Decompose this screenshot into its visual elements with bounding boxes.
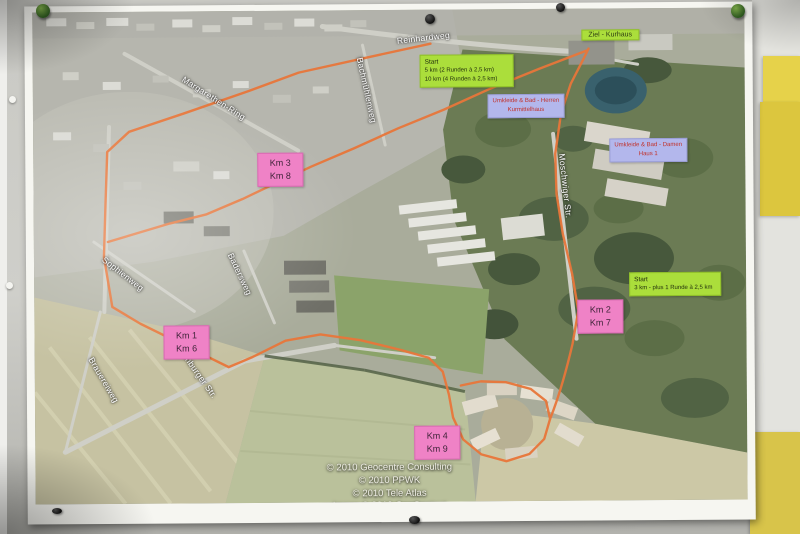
yellow-sticky-note [760, 102, 800, 216]
photo-of-pinned-map: Reinhardweg Margarethen-Ring Bachmühlenw… [0, 0, 800, 534]
km-marker-4-9: Km 4 Km 9 [414, 426, 460, 460]
facility-line: Umkleide & Bad - Damen [614, 141, 682, 150]
km-marker-line: Km 3 [270, 157, 291, 170]
km-marker-line: Km 9 [427, 443, 448, 456]
km-marker-line: Km 4 [427, 430, 448, 443]
km-marker-3-8: Km 3 Km 8 [257, 153, 303, 187]
black-pushpin [425, 14, 435, 24]
printed-map-sheet: Reinhardweg Margarethen-Ring Bachmühlenw… [24, 1, 756, 524]
start-distance-line: 10 km (4 Runden à 2,5 km) [425, 75, 509, 84]
facility-label-damen: Umkleide & Bad - Damen Haus 1 [609, 138, 687, 163]
finish-label: Ziel - Kurhaus [581, 29, 639, 40]
km-marker-1-6: Km 1 Km 6 [163, 325, 209, 359]
km-marker-line: Km 8 [270, 170, 291, 183]
attribution-line: Image © 2010 GeoContent [327, 500, 452, 504]
start-box-3km: Start 3 km - plus 1 Runde à 2,5 km [629, 272, 721, 297]
facility-line: Haus 1 [614, 150, 682, 159]
attribution-line: © 2010 Geocentre Consulting [327, 462, 452, 476]
facility-line: Umkleide & Bad - Herren [492, 97, 559, 106]
wall-pin-dot [6, 282, 13, 289]
yellow-sticky-note [763, 56, 800, 102]
black-pushpin [556, 3, 565, 12]
black-pushpin [409, 516, 420, 524]
attribution-line: © 2010 PPWK [327, 474, 452, 488]
facility-line: Kurmittelhaus [493, 106, 560, 115]
start-box-main: Start 5 km (2 Runden à 2,5 km) 10 km (4 … [420, 54, 514, 87]
aerial-art [32, 8, 747, 505]
start-distance-line: 3 km - plus 1 Runde à 2,5 km [634, 284, 716, 293]
left-paper-edge [0, 0, 7, 534]
green-pushpin [36, 4, 50, 18]
start-title: Start [634, 275, 716, 285]
km-marker-2-7: Km 2 Km 7 [577, 299, 623, 333]
facility-label-herren: Umkleide & Bad - Herren Kurmittelhaus [487, 94, 564, 119]
aerial-map: Reinhardweg Margarethen-Ring Bachmühlenw… [32, 8, 747, 505]
black-pushpin [52, 508, 62, 514]
map-attribution: © 2010 Geocentre Consulting © 2010 PPWK … [327, 462, 453, 505]
km-marker-line: Km 6 [176, 342, 197, 355]
km-marker-line: Km 2 [590, 303, 611, 316]
km-marker-line: Km 1 [176, 329, 197, 342]
wall-pin-dot [9, 96, 16, 103]
km-marker-line: Km 7 [590, 316, 611, 329]
yellow-sticky-note [750, 432, 800, 534]
green-pushpin [731, 4, 745, 18]
